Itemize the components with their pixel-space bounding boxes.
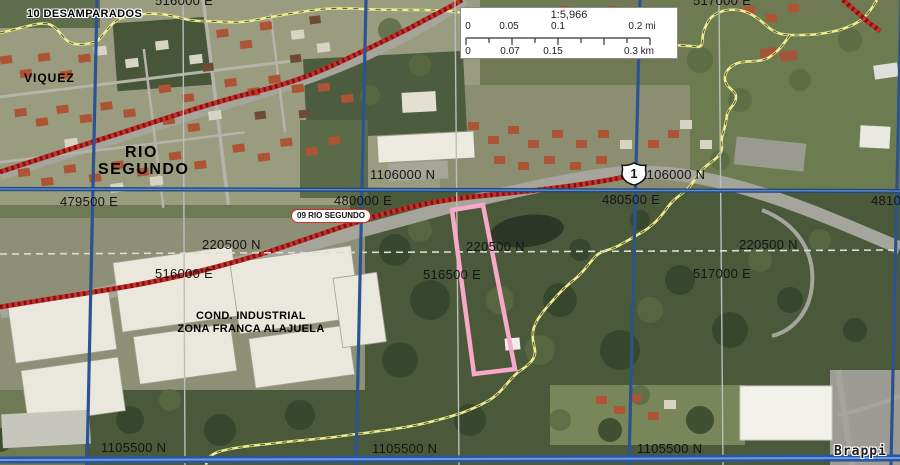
- scale-ruler: [461, 34, 677, 46]
- grid-label-479500e: 479500 E: [60, 194, 118, 209]
- grid-label-220500n-1: 220500 N: [202, 237, 261, 252]
- route-1-shield-icon: 1: [620, 162, 648, 186]
- label-rio-segundo-line1: RIO: [125, 144, 158, 162]
- scale-mi-01: 0.1: [551, 21, 565, 32]
- grid-label-1106000n-left: 1106000 N: [370, 167, 435, 182]
- satellite-imagery: [0, 0, 900, 465]
- grid-label-1105500n-2: 1105500 N: [372, 441, 437, 456]
- label-cond-industrial: COND. INDUSTRIAL ZONA FRANCA ALAJUELA: [160, 310, 342, 336]
- grid-label-480000e: 480000 E: [334, 193, 392, 208]
- label-cond-industrial-line2: ZONA FRANCA ALAJUELA: [160, 323, 342, 336]
- grid-label-220500n-3: 220500 N: [739, 237, 798, 252]
- label-cond-industrial-line1: COND. INDUSTRIAL: [160, 310, 342, 323]
- label-desamparados: 10 DESAMPARADOS: [27, 8, 142, 20]
- grid-label-1105500n-3: 1105500 N: [637, 441, 702, 456]
- map-viewport[interactable]: 1106000 N 1106000 N 1105500 N 1105500 N …: [0, 0, 900, 465]
- large-building: [740, 386, 832, 440]
- route-number: 1: [620, 166, 648, 181]
- scale-km-03: 0.3 km: [624, 46, 654, 57]
- grid-label-220500n-2: 220500 N: [466, 239, 525, 254]
- scale-km-0: 0: [465, 46, 471, 57]
- watermark: Brappi: [834, 444, 887, 459]
- grid-label-516500e: 516500 E: [423, 267, 481, 282]
- label-viquez: VIQUEZ: [24, 71, 75, 85]
- road-label-09-rio-segundo: 09 RIO SEGUNDO: [291, 209, 371, 223]
- grid-label-516000e-top-clipped: 516000 E: [155, 0, 213, 8]
- scale-mi-005: 0.05: [499, 21, 518, 32]
- scale-km-015: 0.15: [543, 46, 562, 57]
- grid-label-1106000n-right: 1106000 N: [640, 167, 705, 182]
- scale-mi-0: 0: [465, 21, 471, 32]
- grid-label-517000e-top-clipped: 517000 E: [693, 0, 751, 8]
- grid-label-1105500n-1: 1105500 N: [101, 440, 166, 455]
- grid-label-481000e-clipped: 481000 E: [871, 193, 900, 208]
- label-rio-segundo-line2: SEGUNDO: [98, 161, 189, 179]
- scale-ratio: 1:5,966: [461, 9, 677, 21]
- scale-km-007: 0.07: [500, 46, 519, 57]
- grid-label-480500e: 480500 E: [602, 192, 660, 207]
- grid-label-516000e: 516000 E: [155, 266, 213, 281]
- scale-mi-02: 0.2 mi: [628, 21, 655, 32]
- grid-label-517000e: 517000 E: [693, 266, 751, 281]
- scale-bar: 1:5,966 0 0.05 0.1 0.2 mi 0 0.07 0.15 0.…: [460, 7, 678, 59]
